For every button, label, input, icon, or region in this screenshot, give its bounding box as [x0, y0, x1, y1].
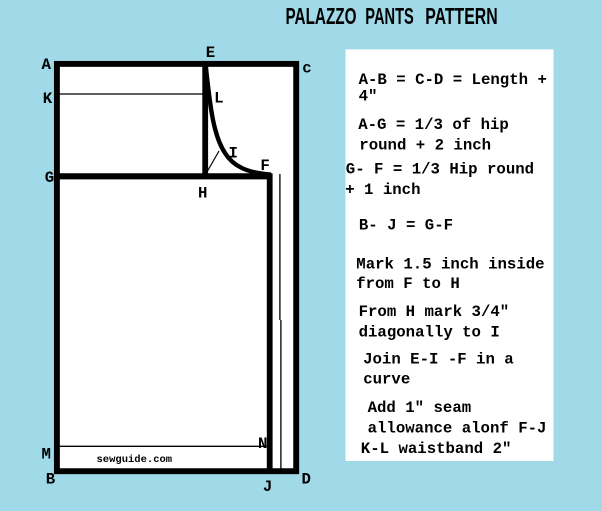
svg-text:PATTERN: PATTERN — [425, 3, 498, 29]
svg-text:M: M — [42, 445, 51, 463]
svg-text:K-L waistband 2": K-L waistband 2" — [361, 440, 512, 458]
svg-text:allowance alonf F-J: allowance alonf F-J — [368, 420, 547, 438]
svg-text:Join E-I -F in a: Join E-I -F in a — [363, 351, 514, 369]
svg-text:round + 2 inch: round + 2 inch — [359, 136, 491, 154]
svg-text:L: L — [214, 89, 223, 107]
svg-text:sewguide.com: sewguide.com — [97, 454, 173, 466]
svg-text:N: N — [258, 435, 267, 453]
svg-text:Mark 1.5 inch inside: Mark 1.5 inch inside — [356, 255, 544, 273]
svg-text:A-B = C-D = Length +: A-B = C-D = Length + — [359, 71, 547, 89]
svg-text:from F to H: from F to H — [356, 275, 460, 293]
svg-text:D: D — [302, 470, 311, 488]
svg-text:H: H — [198, 185, 207, 203]
svg-text:G- F = 1/3 Hip round: G- F = 1/3 Hip round — [346, 161, 534, 179]
svg-text:PALAZZO: PALAZZO — [286, 3, 357, 29]
svg-text:J: J — [263, 478, 272, 496]
svg-text:A: A — [42, 56, 52, 74]
svg-text:G: G — [45, 169, 54, 187]
svg-text:4": 4" — [359, 87, 378, 105]
svg-text:From H mark 3/4": From H mark 3/4" — [359, 303, 510, 321]
svg-text:K: K — [43, 90, 53, 108]
svg-text:PANTS: PANTS — [365, 3, 414, 29]
svg-text:E: E — [206, 44, 215, 62]
svg-text:F: F — [260, 157, 269, 175]
svg-text:B- J = G-F: B- J = G-F — [359, 217, 453, 235]
svg-text:c: c — [302, 60, 311, 78]
svg-text:A-G = 1/3 of hip: A-G = 1/3 of hip — [358, 116, 509, 134]
svg-text:diagonally to I: diagonally to I — [359, 324, 500, 342]
svg-text:curve: curve — [363, 370, 410, 388]
svg-text:+ 1 inch: + 1 inch — [345, 181, 420, 199]
svg-text:I: I — [229, 145, 238, 163]
svg-text:Add 1" seam: Add 1" seam — [368, 399, 472, 417]
svg-text:B: B — [46, 471, 56, 489]
